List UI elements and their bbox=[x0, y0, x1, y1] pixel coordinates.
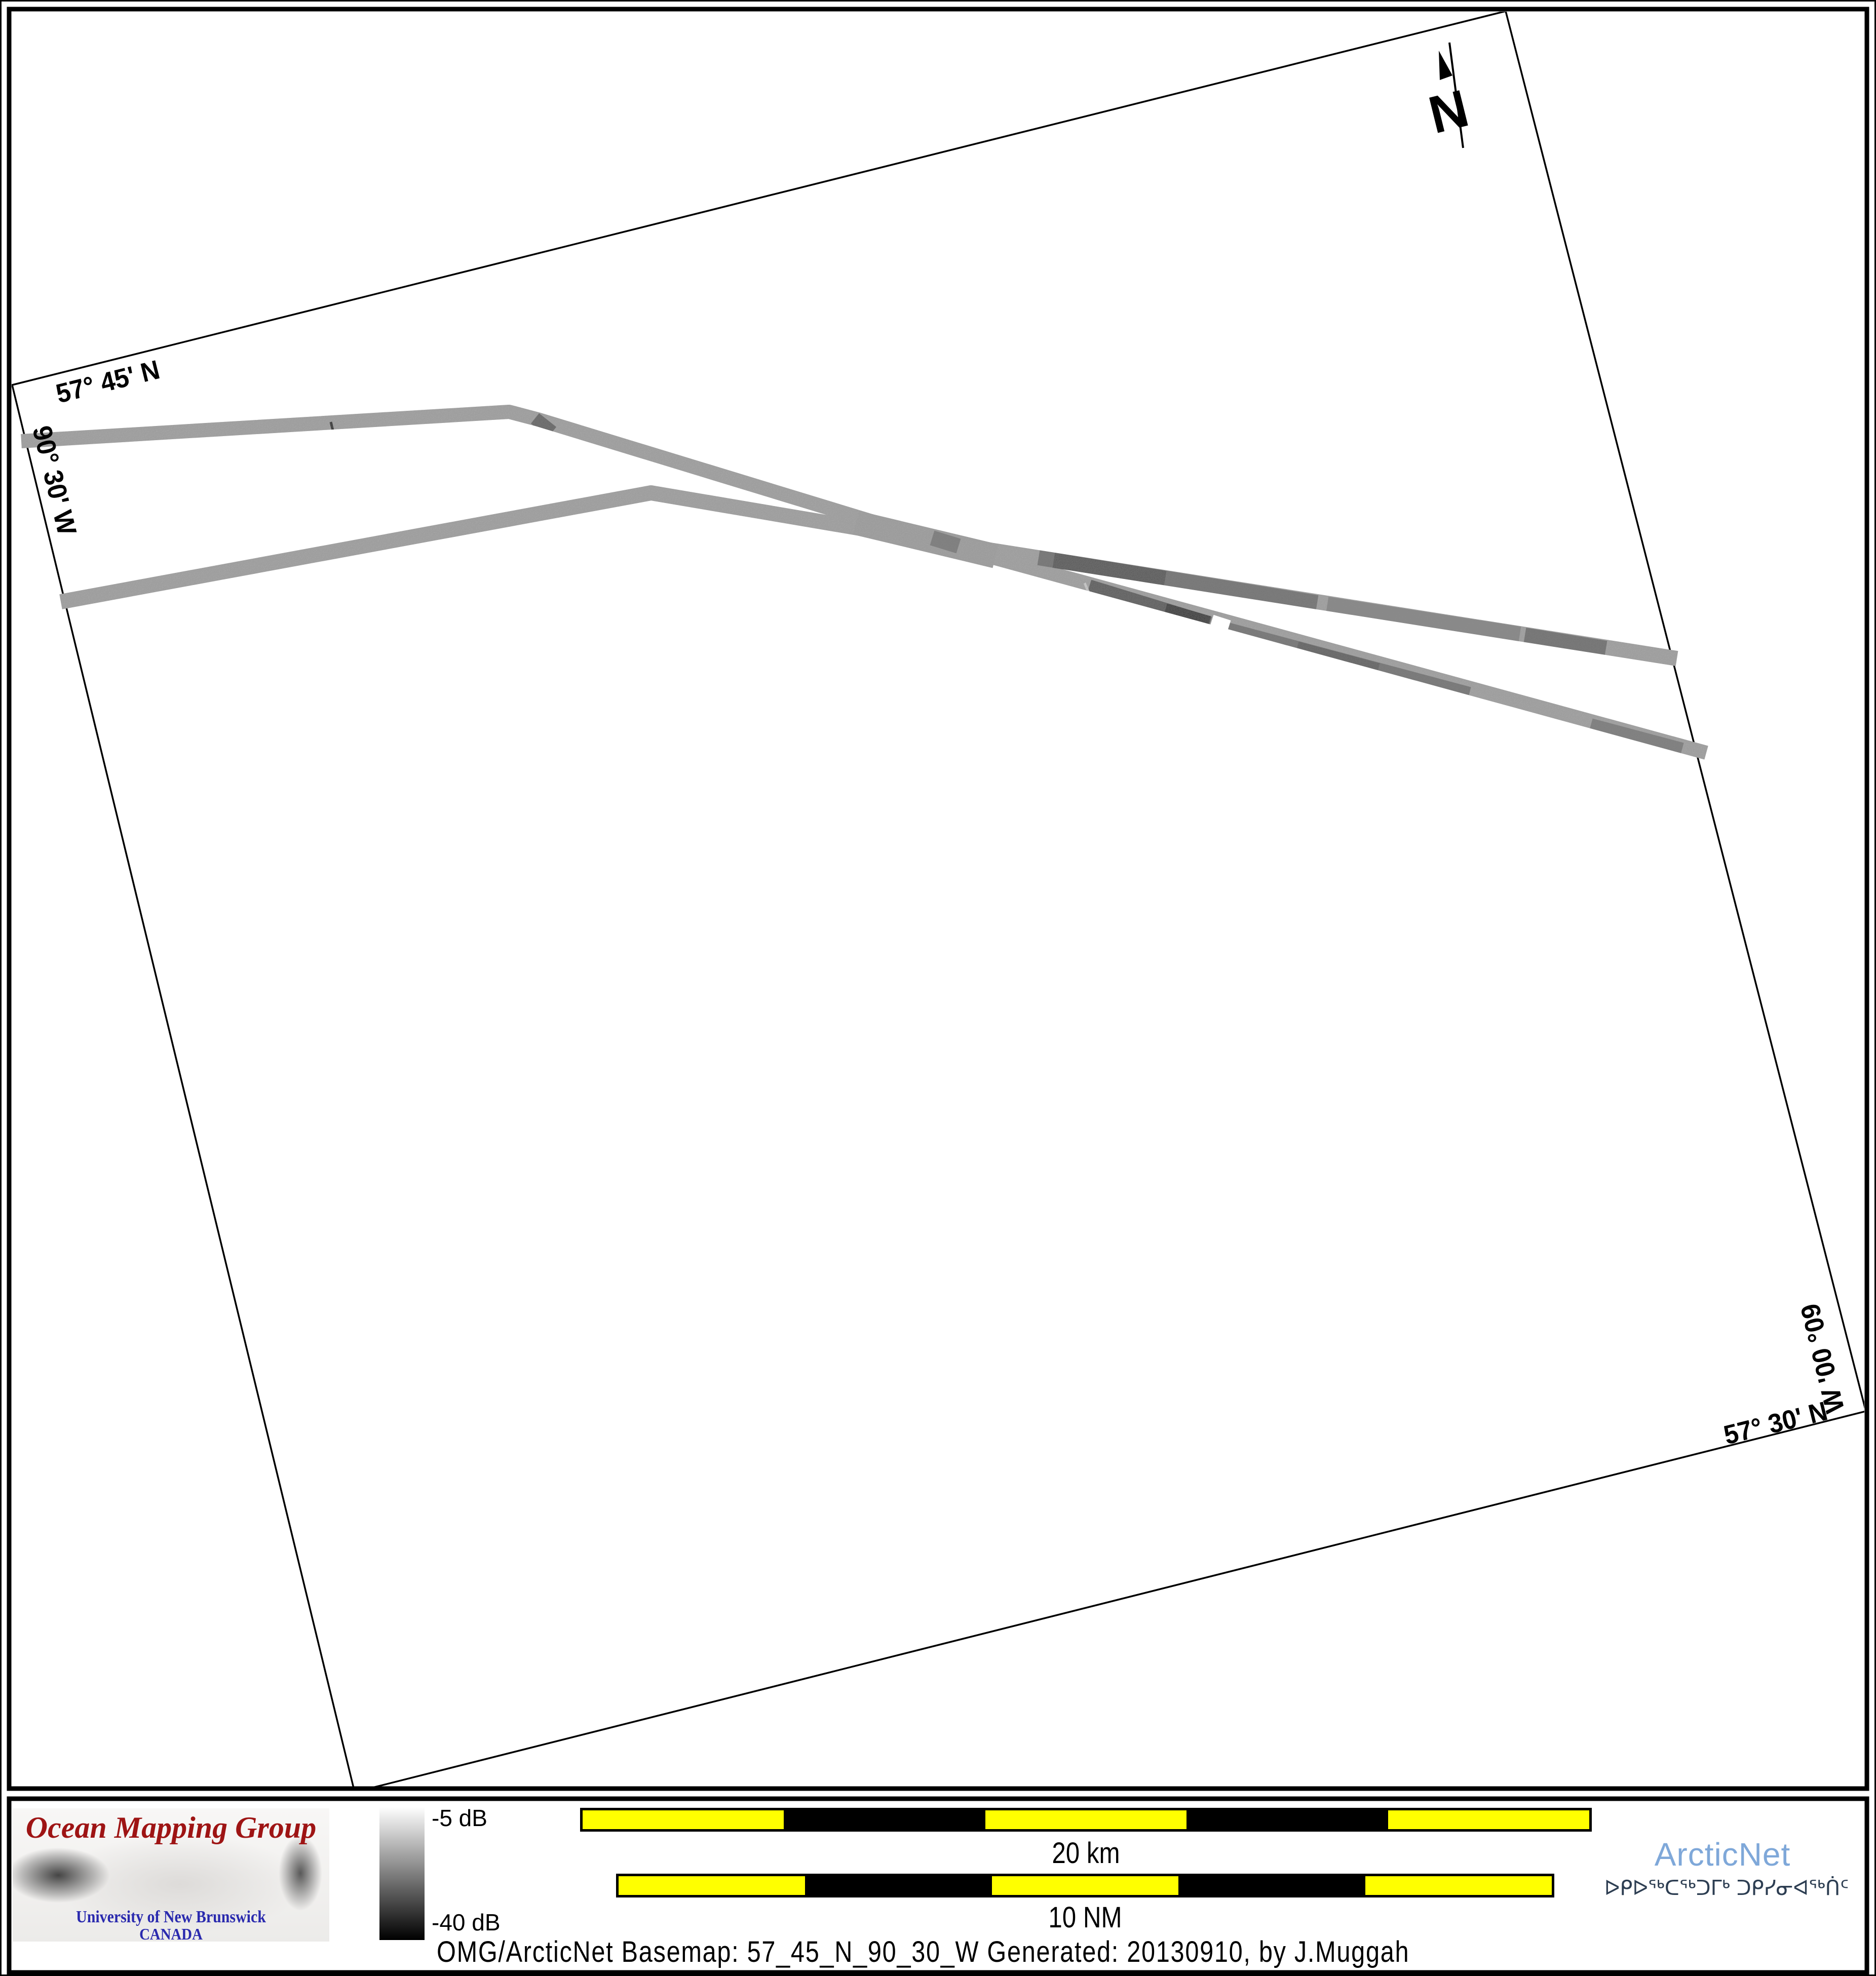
arcticnet-logo: ArcticNet bbox=[1596, 1838, 1849, 1871]
colorbar-max-label: -5 dB bbox=[432, 1806, 487, 1830]
scalebar-kilometres-label: 20 km bbox=[656, 1839, 1516, 1868]
omg-logo-title: Ocean Mapping Group bbox=[13, 1810, 329, 1845]
omg-logo-university: University of New Brunswick bbox=[32, 1908, 311, 1927]
omg-logo: Ocean Mapping Group University of New Br… bbox=[13, 1808, 329, 1942]
scalebar-nautical-miles-label: 10 NM bbox=[686, 1903, 1484, 1932]
map-frame bbox=[12, 11, 1866, 1792]
scalebar-segment bbox=[1365, 1876, 1552, 1895]
map-canvas: N 57° 45' N 90° 30' W W '00 °09 57° 30' … bbox=[0, 0, 1876, 1976]
survey-track-swaths bbox=[15, 395, 1712, 765]
scalebar-segment bbox=[985, 1810, 1186, 1829]
scalebar-nautical-miles bbox=[616, 1874, 1554, 1897]
colorbar-min-label: -40 dB bbox=[432, 1911, 501, 1934]
scalebar-segment bbox=[784, 1810, 985, 1829]
arcticnet-syllabics-tagline: ᐅᑭᐅᖅᑕᖅᑐᒥᒃ ᑐᑭᓯᓂᐊᖅᑏᑦ bbox=[1590, 1876, 1863, 1900]
basemap-page: { "map": { "labels": { "top_lat": "57° 4… bbox=[0, 0, 1876, 1976]
scalebar-segment bbox=[805, 1876, 991, 1895]
omg-logo-country: CANADA bbox=[28, 1925, 314, 1942]
track-data-gap bbox=[1211, 624, 1228, 629]
scalebar-segment bbox=[619, 1876, 805, 1895]
scalebar-segment bbox=[1388, 1810, 1589, 1829]
scalebar-segment bbox=[583, 1810, 784, 1829]
scalebar-kilometres bbox=[580, 1808, 1592, 1832]
scalebar-segment bbox=[1186, 1810, 1388, 1829]
scalebar-segment bbox=[992, 1876, 1178, 1895]
scalebar-segment bbox=[1178, 1876, 1365, 1895]
basemap-caption: OMG/ArcticNet Basemap: 57_45_N_90_30_W G… bbox=[437, 1937, 1409, 1967]
backscatter-colorbar bbox=[379, 1807, 425, 1940]
